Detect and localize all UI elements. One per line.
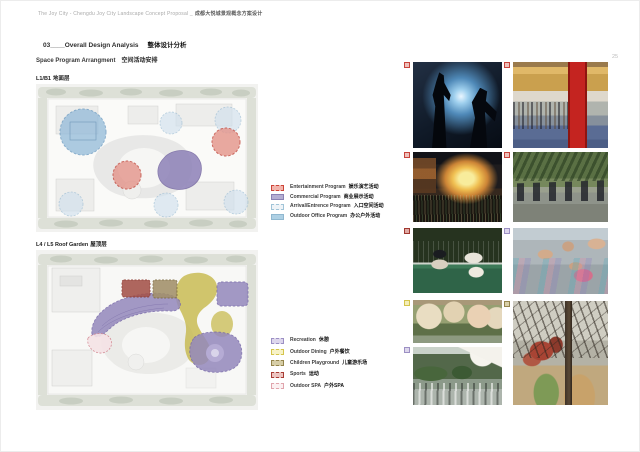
recreation-garden-zone <box>190 332 242 372</box>
legend-label-en: Outdoor SPA <box>290 383 321 389</box>
site-plan-roof-drawing <box>36 250 258 410</box>
legend-label-en: Entertainment Program <box>290 184 346 190</box>
photo-category-marker <box>504 228 510 234</box>
legend-item: Recreation休憩 <box>271 335 367 346</box>
plan-label-l1b1-cn: 地面层 <box>53 76 70 82</box>
document-header: The Joy City - Chengdu Joy City Landscap… <box>38 10 262 17</box>
plan-label-roof-en: L4 / L5 Roof Garden <box>36 242 88 248</box>
legend-swatch <box>271 349 284 355</box>
page-number: 25 <box>612 54 618 60</box>
outdoor-office-zone <box>60 109 106 155</box>
recreation-terrace-zone <box>217 282 248 306</box>
photo-outdoor-yoga <box>513 228 608 294</box>
legend-swatch <box>271 372 284 378</box>
section-title-cn: 整体设计分析 <box>148 42 187 49</box>
plan-label-l1b1: L1/B1地面层 <box>36 74 70 82</box>
photo-outdoor-group-exercise <box>513 152 608 222</box>
legend-item: Commercial Program商业展示活动 <box>271 193 384 203</box>
legend-swatch <box>271 185 284 191</box>
legend-label-en: Outdoor Office Program <box>290 213 347 219</box>
legend-label-en: Outdoor Dining <box>290 349 327 355</box>
legend-item: Sports运动 <box>271 369 367 380</box>
plan-label-roof-cn: 屋顶层 <box>90 242 107 248</box>
header-title-cn: 成都大悦城景观概念方案设计 <box>195 11 263 17</box>
legend-label-cn: 儿童游乐场 <box>342 360 367 366</box>
photo-concert-performance <box>413 62 502 148</box>
legend-label-en: Commercial Program <box>290 194 341 200</box>
site-plan-l1b1 <box>36 84 258 232</box>
legend-item: Outdoor SPA户外SPA <box>271 381 367 392</box>
photo-category-marker <box>504 62 510 68</box>
plan-label-roof: L4 / L5 Roof Garden屋顶层 <box>36 240 107 248</box>
photo-category-marker <box>404 300 410 306</box>
legend-label-cn: 运动 <box>309 371 319 377</box>
section-title-en: 03____Overall Design Analysis <box>43 42 139 49</box>
photo-tennis-match <box>413 228 502 293</box>
photo-umbrella-terrace <box>413 300 502 343</box>
site-plan-roof-garden <box>36 250 258 410</box>
legend-label-en: Children Playground <box>290 360 339 366</box>
children-playground-zone <box>153 280 177 298</box>
legend-label-en: Arrival/Entrence Program <box>290 203 351 209</box>
subtitle-cn: 空间活动安排 <box>121 58 157 64</box>
photo-children-playground <box>513 301 608 405</box>
legend-item: Arrival/Entrence Program入口空间活动 <box>271 202 384 212</box>
legend-label-cn: 户外SPA <box>324 383 344 389</box>
legend-swatch <box>271 214 284 220</box>
legend-swatch <box>271 194 284 200</box>
header-title-en: The Joy City - Chengdu Joy City Landscap… <box>38 11 193 17</box>
activity-legend: Recreation休憩 Outdoor Dining户外餐饮 Children… <box>271 335 367 392</box>
legend-swatch <box>271 338 284 344</box>
photo-category-marker <box>404 152 410 158</box>
photo-category-marker <box>404 347 410 353</box>
legend-swatch <box>271 383 284 389</box>
legend-label-cn: 商业展示活动 <box>344 194 374 200</box>
photo-outdoor-dining-terrace <box>413 347 502 405</box>
legend-swatch <box>271 204 284 210</box>
photo-outdoor-movie-night <box>413 152 502 222</box>
photo-category-marker <box>504 152 510 158</box>
subtitle-en: Space Program Arrangment <box>36 58 115 64</box>
legend-label-cn: 娱乐演艺活动 <box>349 184 379 190</box>
legend-item: Outdoor Office Program办公户外活动 <box>271 212 384 222</box>
slide-page: The Joy City - Chengdu Joy City Landscap… <box>0 0 640 452</box>
sports-zone <box>122 280 150 297</box>
subtitle: Space Program Arrangment空间活动安排 <box>36 55 157 64</box>
section-title: 03____Overall Design Analysis整体设计分析 <box>43 39 187 49</box>
legend-label-cn: 入口空间活动 <box>354 203 384 209</box>
legend-label-cn: 户外餐饮 <box>330 349 350 355</box>
site-plan-l1b1-drawing <box>36 84 258 232</box>
photo-category-marker <box>404 62 410 68</box>
legend-item: Children Playground儿童游乐场 <box>271 358 367 369</box>
legend-label-cn: 办公户外活动 <box>350 213 380 219</box>
photo-mall-event-crowd <box>513 62 608 148</box>
legend-item: Outdoor Dining户外餐饮 <box>271 346 367 357</box>
plan-label-l1b1-en: L1/B1 <box>36 76 51 82</box>
photo-category-marker <box>504 301 510 307</box>
legend-label-en: Sports <box>290 371 306 377</box>
legend-label-en: Recreation <box>290 337 316 343</box>
legend-label-cn: 休憩 <box>319 337 329 343</box>
photo-category-marker <box>404 228 410 234</box>
program-legend: Entertainment Program娱乐演艺活动 Commercial P… <box>271 183 384 221</box>
legend-item: Entertainment Program娱乐演艺活动 <box>271 183 384 193</box>
legend-swatch <box>271 360 284 366</box>
